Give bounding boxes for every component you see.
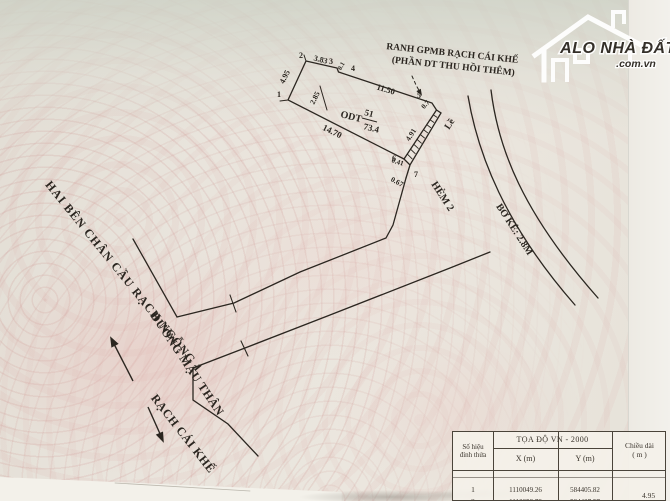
col-header-vertex: Số hiệu đỉnh thửa [453,432,493,470]
boundary-line-upper [133,178,406,317]
vertex-4: 4 [351,64,355,73]
vertex-7: 7 [414,170,418,179]
brand-domain: .com.vn [616,58,656,70]
table-edge-length: 4.95 [612,489,666,501]
table-divider [453,477,665,478]
dim-left-side: 4.95 [278,69,292,86]
col-header-length: Chiều dài ( m ) [612,432,666,470]
col-header-length-line2: ( m ) [632,451,647,460]
dim-top-2: 11.50 [375,82,396,97]
cadastral-drawing: RANH GPMB RẠCH CÁI KHẾ (PHẦN DT THU HỒI … [0,0,670,501]
col-header-vertex-line1: Số hiệu [462,443,483,451]
table-title: TỌA ĐỘ VN - 2000 [493,432,612,448]
coordinate-table: Số hiệu đỉnh thửa TỌA ĐỘ VN - 2000 X (m)… [452,431,666,501]
table-row2-id: 2 [453,495,493,501]
alley-label: HẺM 2 [429,179,457,213]
sidewalk-strip [404,110,441,178]
canal-direction-arrowhead [157,433,163,442]
col-header-x: X (m) [493,448,558,470]
table-row2-y: 584407.57 [558,495,612,501]
table-divider [453,470,665,471]
embankment-label: BỜ KÈ: 2.8M [493,201,536,258]
dim-top-1: 3.83 [313,53,329,65]
parcel-number: 51 [364,107,376,119]
col-header-vertex-line2: đỉnh thửa [460,451,487,459]
col-header-y: Y (m) [558,448,612,470]
vertex-5: 5 [417,91,421,100]
scan-fold-line [115,483,250,491]
dim-jog: 0.1 [337,61,347,72]
parcel-landuse-code: ODT [339,109,363,125]
vertex-3: 3 [329,57,333,66]
embankment-line-inner [468,96,575,305]
table-row2-x: 1110053.78 [493,495,558,501]
boundary-line-lower [193,252,490,456]
watermark-logo: ALO NHÀ ĐẤT .com.vn [535,12,670,80]
road-direction-arrowhead [111,338,117,347]
road-direction-arrow [114,344,133,381]
parcel-area: 73.4 [363,121,381,135]
dim-corner: 0.7 [420,98,432,110]
brand-name: ALO NHÀ ĐẤT [559,38,670,57]
dim-bottom-side: 14.70 [321,122,344,140]
dim-inner: 2.85 [308,90,322,106]
direction-arrows [111,338,163,441]
vertex-1: 1 [277,90,281,99]
sidewalk-label: Lề [442,117,457,132]
inner-dimension-line [320,86,327,110]
vertex-2: 2 [299,51,303,60]
